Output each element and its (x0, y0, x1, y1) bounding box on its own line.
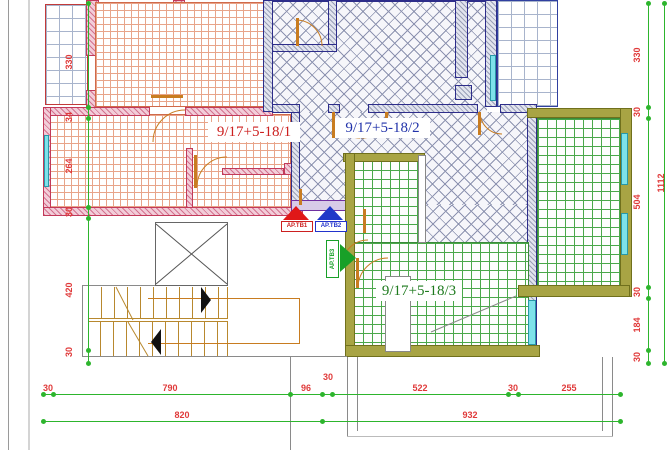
dim-dot (86, 216, 91, 221)
dim-label: 420 (63, 272, 75, 308)
dim-label: 30 (631, 94, 643, 130)
dim-dot (86, 116, 91, 121)
dim-label: 30 (631, 339, 643, 375)
dim-bottom-row2-line (43, 421, 621, 422)
dim-label: 30 (495, 382, 531, 394)
floor-plan-canvas: 9/17+5-18/1 9/17+5-18/2 9/17+5-18/3 AP.T… (0, 0, 670, 450)
dim-dot (41, 419, 46, 424)
elevator-x-mark (156, 224, 227, 284)
apartment-2-label: 9/17+5-18/2 (335, 118, 430, 138)
dim-chain-left-line (88, 3, 89, 363)
marker-3-label: AP.TB3 (326, 240, 339, 278)
dim-dot (86, 205, 91, 210)
apartment-3-label: 9/17+5-18/3 (376, 281, 462, 301)
dim-dot (646, 348, 651, 353)
dim-dot (646, 285, 651, 290)
dim-dot (86, 348, 91, 353)
door-leaf (478, 112, 481, 135)
dim-dot (618, 392, 623, 397)
marker-3-label-text: AP.TB3 (330, 243, 336, 275)
door-leaf (151, 95, 183, 98)
stair-break-line (116, 287, 148, 356)
dim-label: 820 (164, 409, 200, 421)
dim-label: 96 (288, 382, 324, 394)
dim-dot (646, 361, 651, 366)
dim-dot (662, 1, 667, 6)
marker-1-label: AP.TB1 (281, 221, 313, 232)
dim-label: 30 (310, 371, 346, 383)
dim-dot (662, 361, 667, 366)
dim-label: 34 (63, 99, 75, 135)
dim-label: 255 (551, 382, 587, 394)
dim-label: 30 (63, 334, 75, 370)
dim-total-right-label: 1112 (655, 165, 667, 201)
dim-label: 504 (631, 184, 643, 220)
dim-dot (320, 419, 325, 424)
dim-label: 932 (452, 409, 488, 421)
dim-label: 330 (63, 44, 75, 80)
dim-chain-right-line (648, 3, 649, 363)
dim-dot (646, 296, 651, 301)
marker-2-label: AP.TB2 (315, 221, 347, 232)
furniture-diagonal (431, 296, 516, 332)
dim-label: 30 (63, 194, 75, 230)
dim-dot (646, 1, 651, 6)
dim-label: 264 (63, 148, 75, 184)
dim-label: 30 (30, 382, 66, 394)
door-arc (153, 110, 185, 142)
dim-dot (86, 105, 91, 110)
door-leaf (296, 18, 299, 46)
dim-dot (86, 361, 91, 366)
dim-label: 184 (631, 307, 643, 343)
dim-label: 30 (631, 274, 643, 310)
door-leaf (363, 209, 366, 233)
dim-dot (646, 116, 651, 121)
marker-2-arrow-icon (317, 206, 343, 220)
dim-dot (646, 105, 651, 110)
dim-label: 522 (402, 382, 438, 394)
door-arc (480, 112, 502, 134)
dim-label: 330 (631, 37, 643, 73)
door-leaf (356, 258, 359, 288)
marker-1-arrow-icon (283, 206, 309, 220)
stair-direction-arrow-up (201, 287, 211, 313)
stair-direction-arrow-down (151, 329, 161, 355)
dim-dot (618, 419, 623, 424)
door-leaf (194, 155, 197, 188)
door-leaf (299, 189, 302, 205)
apartment-1-label: 9/17+5-18/1 (208, 122, 300, 142)
dim-label: 790 (152, 382, 188, 394)
dim-dot (86, 1, 91, 6)
door-arc (197, 157, 227, 187)
door-arc (296, 20, 322, 46)
marker-3-arrow-icon (340, 244, 356, 272)
dim-dot (330, 392, 335, 397)
